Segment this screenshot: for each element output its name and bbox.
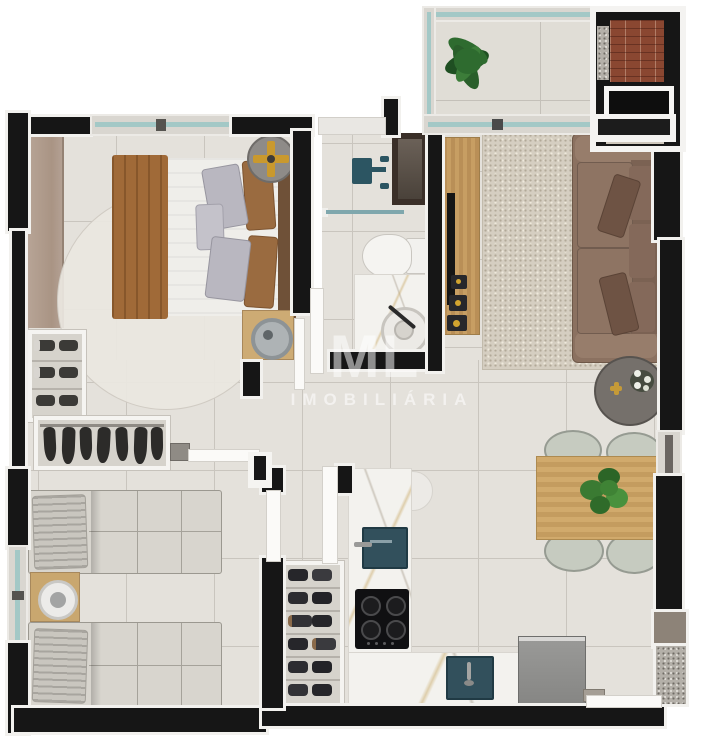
hanging-garment xyxy=(43,427,57,462)
lamp-center xyxy=(263,330,273,340)
burner xyxy=(361,620,381,640)
tv-console xyxy=(438,137,480,335)
pantry-item xyxy=(288,684,308,696)
knob xyxy=(375,642,378,645)
shoe xyxy=(59,340,78,351)
bedroom2-window xyxy=(9,547,26,643)
bedroom2-bed-b xyxy=(28,622,222,708)
shower-glass-partition xyxy=(326,210,404,214)
gold-dot xyxy=(456,279,461,284)
pantry-item xyxy=(288,615,312,627)
jamb-notch xyxy=(254,456,266,480)
shoe xyxy=(59,367,78,378)
balcony-railing-top xyxy=(424,8,594,20)
wall xyxy=(384,99,398,135)
shelf-line xyxy=(284,633,340,635)
kitchen-door xyxy=(322,466,338,564)
bedroom1-window xyxy=(92,116,232,134)
shoe xyxy=(59,395,78,406)
plant-foliage xyxy=(600,480,618,496)
shelf-line xyxy=(32,360,82,362)
clothes-rack xyxy=(34,416,170,470)
pantry-item xyxy=(312,569,332,581)
burner xyxy=(361,596,381,616)
sliding-door-handle xyxy=(492,119,503,130)
shoe-rack xyxy=(28,330,86,422)
burner xyxy=(386,596,406,616)
wall xyxy=(337,466,352,493)
hanging-garment xyxy=(61,427,75,464)
quilt-line xyxy=(89,665,221,666)
plant-foliage xyxy=(590,496,610,514)
shower-arm xyxy=(372,167,386,172)
knob xyxy=(391,642,394,645)
pantry-item xyxy=(312,661,332,673)
quilt-line xyxy=(137,491,138,573)
sliding-door-glass xyxy=(428,122,592,127)
wall xyxy=(262,558,283,708)
wall xyxy=(12,231,25,469)
pantry-shelf xyxy=(280,561,344,708)
blanket-fold xyxy=(91,623,101,707)
refrigerator xyxy=(518,636,586,708)
pantry-item xyxy=(312,592,332,604)
pantry-item xyxy=(288,592,308,604)
wall xyxy=(30,117,90,134)
hall-door xyxy=(266,490,281,562)
living-top-right-frame xyxy=(592,114,676,142)
wall xyxy=(660,240,682,432)
quilt-line xyxy=(181,491,182,573)
nightstand-lamp xyxy=(38,580,78,620)
gold-dot xyxy=(455,300,461,306)
burner xyxy=(386,620,406,640)
faucet-arm xyxy=(370,540,392,543)
bathroom-niche xyxy=(392,133,428,205)
shower-head xyxy=(352,158,372,184)
wall xyxy=(8,469,28,547)
flower xyxy=(643,385,649,391)
toilet-bowl xyxy=(362,234,412,278)
shoe-tip xyxy=(34,367,40,378)
kitchen-sink-1 xyxy=(362,527,408,569)
wall xyxy=(8,113,28,231)
fridge-top-edge xyxy=(519,637,585,641)
balcony-plant xyxy=(438,28,496,98)
shower-knob xyxy=(380,183,389,189)
service-door xyxy=(586,695,662,708)
plant-leaf xyxy=(454,48,482,74)
shower-knob xyxy=(380,156,389,162)
pantry-item xyxy=(312,615,332,627)
balcony-railing-left xyxy=(424,8,434,118)
bed-pillow xyxy=(32,494,89,570)
niche-glass xyxy=(398,139,422,199)
pantry-item xyxy=(312,684,332,696)
bedroom2-bed-a xyxy=(28,490,222,574)
console-decor xyxy=(449,295,467,311)
lamp-center xyxy=(50,592,66,608)
shoe xyxy=(36,395,55,406)
nightstand-lamp xyxy=(251,318,293,360)
faucet-base xyxy=(464,680,474,686)
window-mullion xyxy=(12,591,24,600)
fan-hub xyxy=(267,155,275,163)
railing-glass xyxy=(427,12,431,114)
cooktop xyxy=(355,589,409,649)
gold-decor xyxy=(614,382,619,395)
frame-inner xyxy=(598,119,670,135)
flower xyxy=(634,382,641,389)
watermark-label: IMOBILIÁRIA xyxy=(252,390,512,412)
dining-window xyxy=(658,432,680,476)
window-mullion xyxy=(156,119,166,131)
bbq-brick-wall xyxy=(610,20,664,82)
shelf-line xyxy=(284,610,340,612)
ceiling-fan xyxy=(247,135,295,183)
shoe-tip xyxy=(34,340,40,351)
bbq-granite-pillar xyxy=(597,26,609,80)
knob xyxy=(383,642,386,645)
shelf-line xyxy=(284,656,340,658)
faucet xyxy=(467,662,471,680)
wall xyxy=(14,708,266,732)
hanging-garment xyxy=(79,427,92,460)
dining-plant xyxy=(578,466,636,522)
flower xyxy=(634,370,641,377)
watermark-monogram: ML xyxy=(290,326,460,390)
sofa-back-cushion xyxy=(629,224,655,278)
kitchen-sink-2 xyxy=(446,656,494,700)
pantry-item xyxy=(288,661,308,673)
pillow-gray xyxy=(204,236,251,302)
bathroom-top-band xyxy=(318,117,386,135)
hanging-garment xyxy=(115,427,129,462)
railing-glass xyxy=(428,12,590,17)
bed-blanket xyxy=(112,155,168,319)
shelf-line xyxy=(284,679,340,681)
wall xyxy=(656,476,682,614)
balcony-sliding-door xyxy=(424,116,596,133)
pantry-item xyxy=(288,638,308,650)
bedroom1-nightstand xyxy=(242,310,294,360)
console-decor xyxy=(451,275,467,289)
flower xyxy=(644,376,651,383)
corner-finish-taupe xyxy=(654,612,686,646)
shelf-line xyxy=(284,587,340,589)
door-hinge-block xyxy=(170,443,190,461)
bed-pillow xyxy=(32,628,89,704)
wall xyxy=(262,706,664,726)
sofa-armrest xyxy=(575,332,657,358)
sofa xyxy=(572,133,662,363)
hanging-garment xyxy=(96,427,111,464)
pantry-item xyxy=(312,638,336,650)
window-glass-dark xyxy=(665,435,673,473)
kitchen-counter-bottom xyxy=(348,652,524,710)
door-jamb xyxy=(248,452,272,488)
side-table xyxy=(594,356,666,426)
hanging-garment xyxy=(133,427,147,464)
shelf-line xyxy=(32,388,82,390)
blanket-fold xyxy=(91,491,101,573)
wall xyxy=(293,131,311,313)
floor-plan: ML IMOBILIÁRIA xyxy=(0,0,709,750)
pantry-item xyxy=(288,569,308,581)
bedroom2-nightstand xyxy=(30,572,80,622)
quilt-line xyxy=(89,531,221,532)
knob xyxy=(367,642,370,645)
hanging-garment xyxy=(151,427,164,460)
